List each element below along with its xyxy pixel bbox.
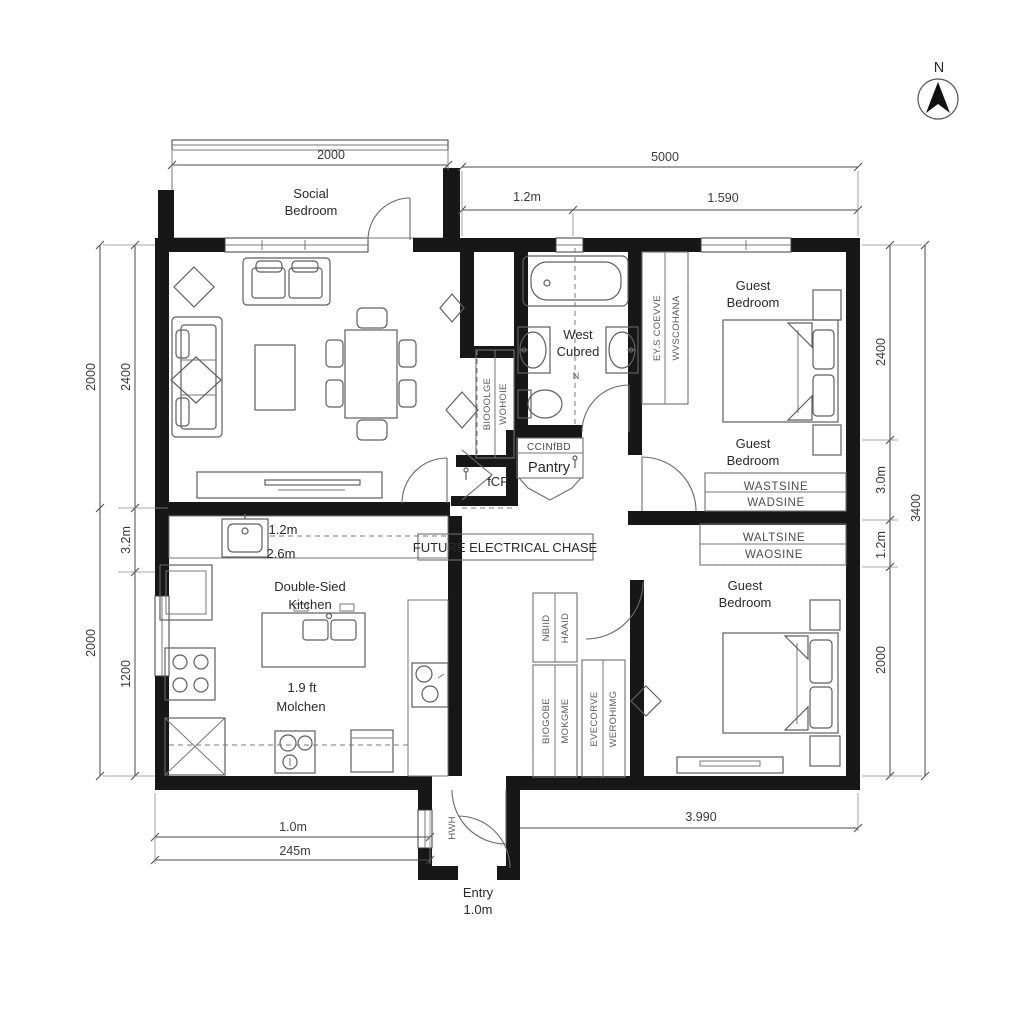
room-label-bath-marker: N — [573, 371, 580, 381]
north-arrow-icon — [918, 79, 958, 119]
window-kitchen-left — [155, 596, 169, 676]
wardrobe-mid-label-2: WAOSINE — [745, 549, 803, 561]
floor-plan-canvas: N 2000 5000 1.2m 1.590 2000 2400 3.2m 20… — [0, 0, 1024, 1024]
media-console — [197, 472, 382, 498]
bench — [677, 757, 783, 773]
entry-side-label: HWH — [447, 816, 458, 840]
room-label-bath-1: West — [563, 327, 593, 342]
dim-right-inner-mid1: 3.0m — [874, 466, 888, 494]
room-label-kitchen-alt-2: Molchen — [276, 699, 325, 714]
dim-bottom-1: 1.0m — [279, 820, 307, 834]
room-label-guest-top-2: Bedroom — [727, 295, 780, 310]
kitchen-island — [262, 604, 365, 667]
hall-cabinet-small-label-2: HAAID — [560, 613, 571, 644]
window-bath-top — [556, 238, 583, 252]
doors — [368, 198, 696, 868]
door-bathroom — [582, 385, 629, 432]
dim-top-seg2: 1.590 — [707, 191, 738, 205]
bed-top — [723, 320, 838, 422]
bath-wardrobe-label-2: WVSCOHANA — [671, 295, 682, 360]
kitchen-sink-top — [222, 514, 268, 557]
room-label-entry-2: 1.0m — [464, 902, 493, 917]
corner-cabinet — [165, 718, 225, 775]
nightstand-top-1 — [813, 290, 841, 320]
bath-wardrobe-label-1: EY.S COEVVE — [652, 295, 663, 361]
nightstand-bottom-2 — [810, 736, 840, 766]
icp-label: fCP. — [487, 474, 511, 489]
electrical-chase-label: FUTURE ELECTRICAL CHASE — [413, 540, 598, 555]
closet-hall-label-1: BIOOOLGE — [482, 378, 493, 431]
door-entry-outer — [458, 816, 510, 868]
dim-left-outer-bottom: 2000 — [84, 629, 98, 657]
room-label-guest-top-1: Guest — [736, 278, 771, 293]
dim-bottom-2: 245m — [279, 844, 310, 858]
dim-right-inner-mid2: 1.2m — [874, 531, 888, 559]
nightstand-top-2 — [813, 425, 841, 455]
hall-cabinet-small-label-1: NBIID — [541, 615, 552, 642]
kitchen-dim-1: 1.2m — [269, 522, 298, 537]
room-label-kitchen-alt-1: 1.9 ft — [288, 680, 317, 695]
pantry-label: Pantry — [528, 460, 571, 476]
room-label-social-2: Bedroom — [285, 203, 338, 218]
room-label-entry-1: Entry — [463, 885, 494, 900]
hall-cabinet-left-label-2: MOKGME — [560, 698, 571, 743]
nightstand-bottom-1 — [810, 600, 840, 630]
wardrobe-mid-label-1: WALTSINE — [743, 532, 805, 544]
room-label-kitchen-1: Double-Sied — [274, 579, 346, 594]
kitchen-dim-2: 2.6m — [267, 546, 296, 561]
door-guest-top — [642, 457, 696, 511]
room-label-guest-bottom-1: Guest — [728, 578, 763, 593]
dim-left-inner-top: 2400 — [119, 363, 133, 391]
room-label-social-1: Social — [293, 186, 329, 201]
guest-bedroom-bottom-furniture — [631, 524, 846, 773]
kitchen-counter-top — [169, 516, 448, 558]
living-room-furniture — [171, 258, 464, 498]
room-label-bath-2: Cubred — [557, 344, 600, 359]
wardrobe-top-label-1: WASTSINE — [744, 481, 808, 493]
window-guest-top — [701, 238, 791, 252]
dim-right-inner-top: 2400 — [874, 338, 888, 366]
dim-top-seg1: 1.2m — [513, 190, 541, 204]
closet-hall-label-2: WOHOIE — [498, 383, 509, 424]
door-living-hall — [402, 458, 447, 503]
coffee-table — [255, 345, 295, 410]
hall-cabinet-left-label-1: BIOGOBE — [541, 698, 552, 744]
dim-left-outer-top: 2000 — [84, 363, 98, 391]
dim-left-inner-mid: 3.2m — [119, 526, 133, 554]
figure-icon — [464, 468, 468, 480]
dim-right-inner-bottom: 2000 — [874, 646, 888, 674]
compass-label: N — [934, 60, 944, 76]
bathtub — [523, 256, 628, 306]
dim-right-outer: 3400 — [909, 494, 923, 522]
kitchen-fixtures — [160, 514, 448, 776]
dining-table — [326, 308, 416, 440]
room-label-guest-mid-2: Bedroom — [727, 453, 780, 468]
wardrobe-top-label-2: WADSINE — [747, 497, 804, 509]
pantry-header: CCINfBD — [527, 442, 571, 453]
room-label-guest-bottom-2: Bedroom — [719, 595, 772, 610]
cooktop-left — [165, 648, 215, 700]
stove-bottom — [275, 731, 315, 773]
dishwasher — [351, 730, 393, 772]
figure-icon — [573, 456, 577, 468]
kitchen-counter-right — [408, 600, 448, 776]
dim-porch: 2000 — [317, 148, 345, 162]
room-label-kitchen-2: Kitchen — [288, 597, 331, 612]
dim-bottom-right: 3.990 — [685, 810, 716, 824]
dim-overall-top: 5000 — [651, 150, 679, 164]
plant-diamond-closet — [446, 392, 478, 428]
window-living-top — [225, 238, 368, 252]
bed-bottom — [723, 633, 838, 733]
plant-diamond-tl — [174, 267, 214, 307]
dim-left-inner-bottom: 1200 — [119, 660, 133, 688]
sofa — [171, 317, 222, 437]
loveseat — [243, 258, 330, 305]
door-entry-inner — [452, 790, 506, 844]
door-porch — [368, 198, 410, 240]
hall-cabinet-right-label-1: EVECORVE — [589, 691, 600, 746]
room-label-guest-mid-1: Guest — [736, 436, 771, 451]
hall-cabinet-right-label-2: WEROHIMG — [608, 691, 619, 748]
floor-plan: N 2000 5000 1.2m 1.590 2000 2400 3.2m 20… — [0, 0, 1024, 1024]
